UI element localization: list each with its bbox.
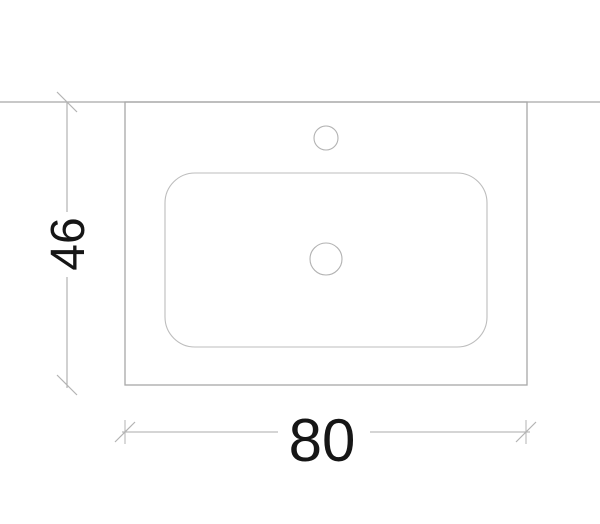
height-dimension-label: 46 [42,217,95,270]
washbasin-technical-drawing: 46 80 [0,0,600,524]
drawing-canvas: 46 80 [0,0,600,524]
width-dimension-label: 80 [289,407,356,474]
faucet-hole [314,126,338,150]
basin-bowl-outline [165,173,487,347]
drain-hole [310,243,342,275]
